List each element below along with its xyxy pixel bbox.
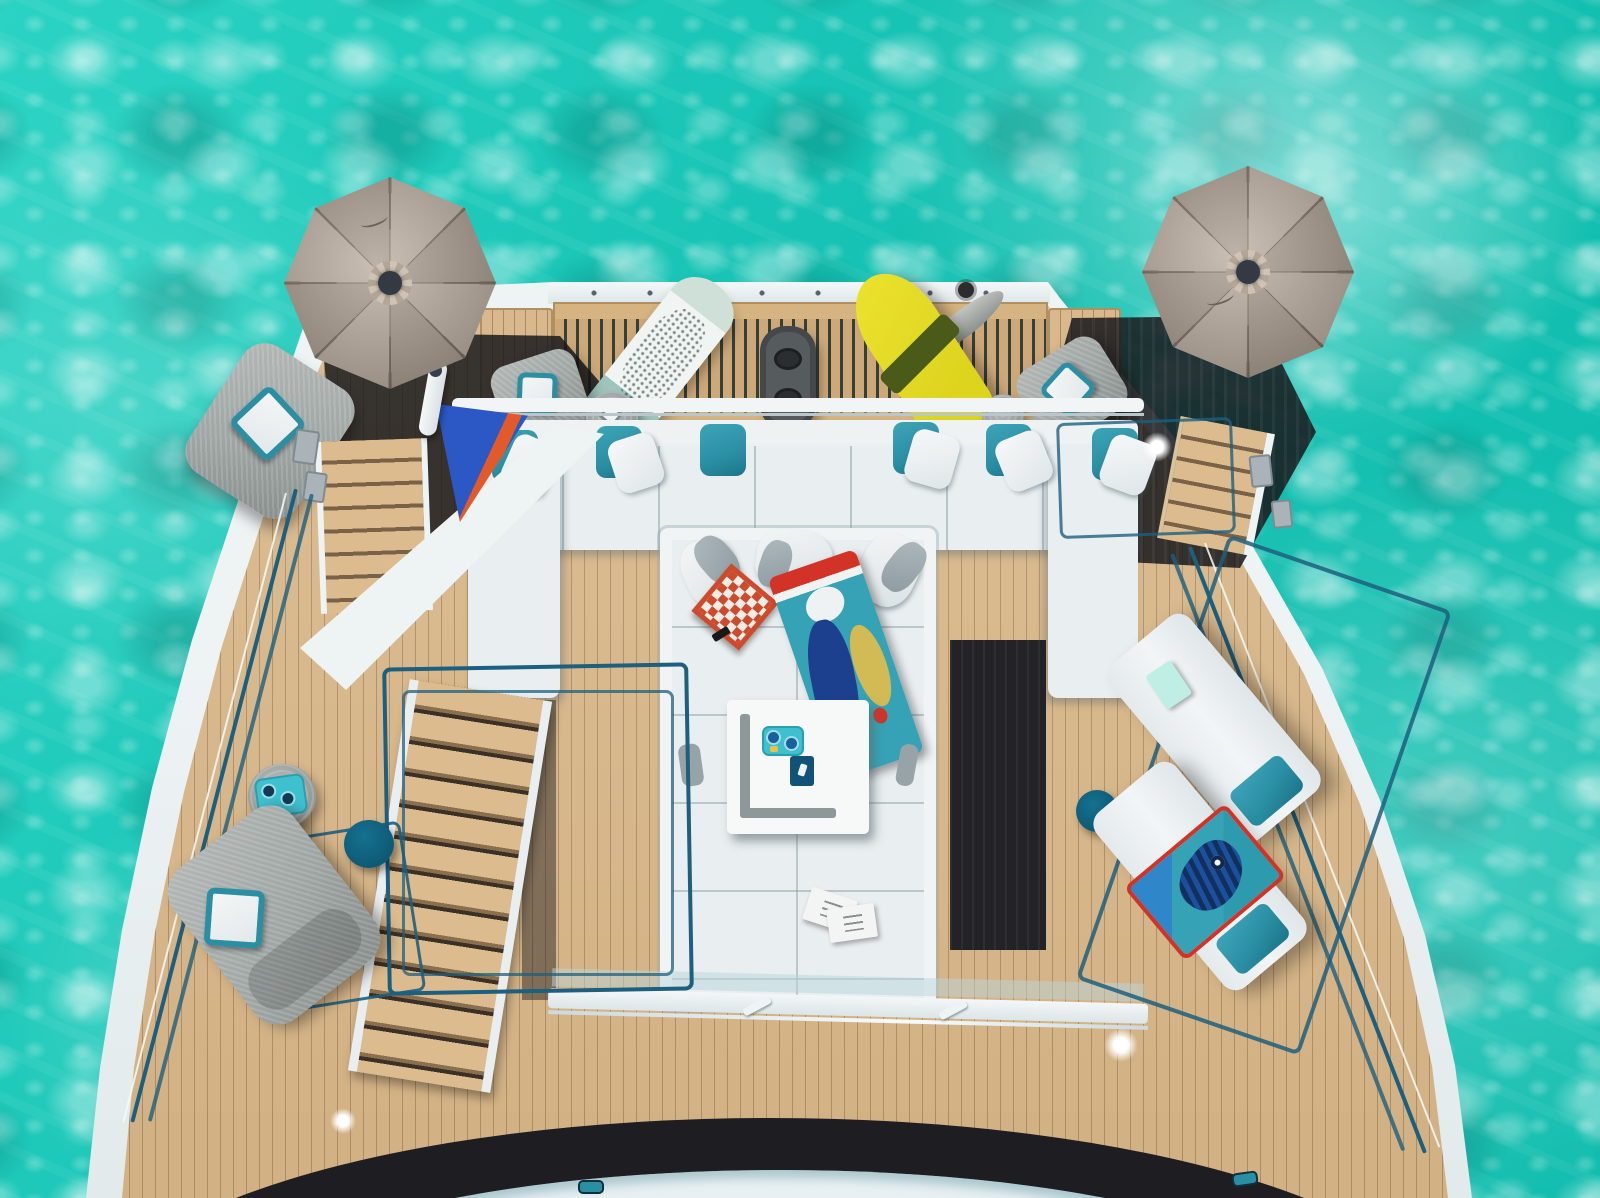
hull-window-left-1 <box>292 428 320 465</box>
side-tray-glass-2 <box>282 792 294 804</box>
table-trim-bottom <box>740 808 836 818</box>
drink-glass-2 <box>786 738 797 749</box>
umbrella-right-hub <box>1236 260 1260 284</box>
umbrella-right-logo <box>1205 289 1235 308</box>
aft-balustrade <box>452 398 1144 412</box>
side-tray-glass-1 <box>262 785 274 797</box>
chaise-pillow <box>203 887 265 949</box>
hull-window-right-1 <box>1248 454 1273 488</box>
hull-window-left-2 <box>302 471 328 504</box>
umbrella-left-logo <box>359 211 389 230</box>
lounger-book <box>1145 660 1192 710</box>
book-logo <box>797 763 807 777</box>
sofa-pillow-teal-3 <box>700 424 746 476</box>
railing-frame-stairwell-inner <box>402 690 674 976</box>
aerial-yacht-photo: Aerial top-down view of a superyacht bow… <box>0 0 1600 1198</box>
hydrofoil-propeller <box>958 282 974 298</box>
cleat-left <box>578 1180 604 1194</box>
sparkle-1 <box>1142 432 1172 462</box>
sparkle-3 <box>330 1108 356 1134</box>
aft-balustrade-steel <box>452 413 1144 416</box>
drinks-tray <box>762 726 804 756</box>
table-trim-left <box>740 714 750 818</box>
towel-red-motif <box>871 706 889 726</box>
tray-snack <box>770 746 778 752</box>
seabob-strap <box>878 312 961 395</box>
shaded-walkway-right <box>950 640 1046 950</box>
umbrella-right <box>1142 166 1354 378</box>
wakeboard-binding-top <box>774 348 802 370</box>
umbrella-left-hub <box>378 271 402 295</box>
coffee-table <box>727 700 869 834</box>
umbrella-left <box>284 177 496 389</box>
sparkle-2 <box>1104 1028 1138 1062</box>
fish-motif <box>1167 831 1256 922</box>
magazine-2 <box>826 903 878 943</box>
drink-glass-1 <box>768 732 779 743</box>
navy-book <box>790 756 814 786</box>
round-table-left <box>344 820 394 868</box>
hull-window-right-2 <box>1271 499 1294 529</box>
